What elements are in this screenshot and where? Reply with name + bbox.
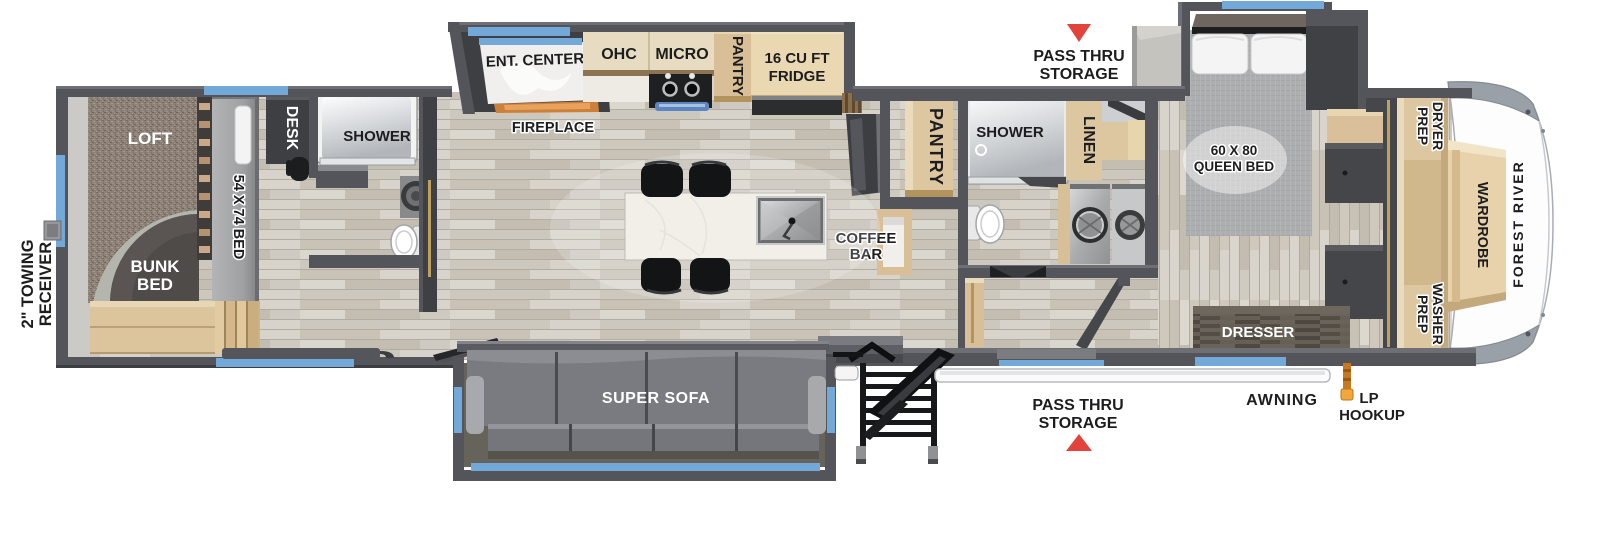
svg-text:PASS THRU: PASS THRU <box>1033 48 1124 65</box>
svg-text:OHC: OHC <box>601 46 637 63</box>
svg-text:HOOKUP: HOOKUP <box>1339 407 1405 424</box>
svg-text:DESK: DESK <box>283 106 300 151</box>
svg-text:FIREPLACE: FIREPLACE <box>512 120 595 136</box>
svg-text:2" TOWING: 2" TOWING <box>19 239 37 328</box>
svg-text:QUEEN BED: QUEEN BED <box>1194 159 1275 174</box>
svg-text:SHOWER: SHOWER <box>976 124 1044 141</box>
svg-text:LOFT: LOFT <box>128 129 173 148</box>
svg-text:FOREST RIVER: FOREST RIVER <box>1510 160 1526 287</box>
svg-text:DRESSER: DRESSER <box>1222 324 1295 341</box>
svg-text:SUPER SOFA: SUPER SOFA <box>602 390 710 407</box>
svg-text:PREP: PREP <box>1415 107 1431 145</box>
svg-text:16 CU FT: 16 CU FT <box>764 50 829 67</box>
svg-text:MICRO: MICRO <box>655 46 708 63</box>
svg-text:LP: LP <box>1359 390 1378 407</box>
svg-text:BUNK: BUNK <box>130 257 180 276</box>
svg-text:AWNING: AWNING <box>1246 392 1318 409</box>
svg-text:BED: BED <box>137 275 173 294</box>
svg-text:54 X 74 BED: 54 X 74 BED <box>230 175 246 260</box>
svg-text:RECEIVER: RECEIVER <box>37 242 55 326</box>
svg-text:FRIDGE: FRIDGE <box>769 68 826 85</box>
svg-text:PANTRY: PANTRY <box>729 36 746 96</box>
svg-text:LINEN: LINEN <box>1080 116 1097 164</box>
svg-text:SHOWER: SHOWER <box>343 128 411 145</box>
svg-text:PANTRY: PANTRY <box>926 108 946 186</box>
svg-text:PREP: PREP <box>1415 295 1431 333</box>
svg-text:ENT. CENTER: ENT. CENTER <box>486 50 585 70</box>
svg-text:WASHER: WASHER <box>1430 283 1446 344</box>
svg-text:STORAGE: STORAGE <box>1040 66 1119 83</box>
svg-text:60 X 80: 60 X 80 <box>1211 143 1258 158</box>
svg-text:STORAGE: STORAGE <box>1039 415 1118 432</box>
svg-text:DRYER: DRYER <box>1430 102 1446 151</box>
svg-text:WARDROBE: WARDROBE <box>1474 182 1490 269</box>
svg-text:PASS THRU: PASS THRU <box>1032 397 1123 414</box>
